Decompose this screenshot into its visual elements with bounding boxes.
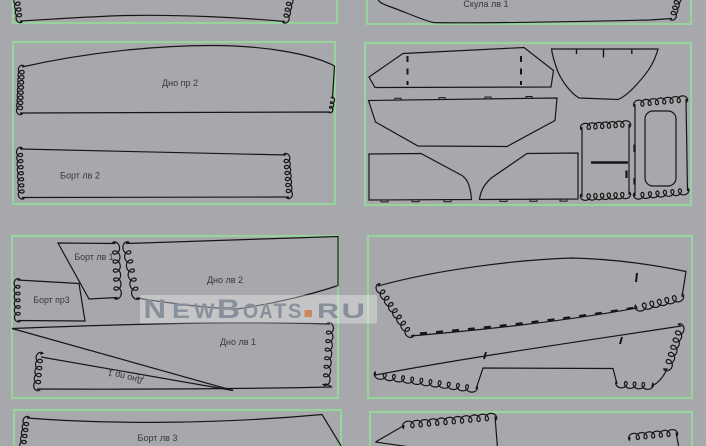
svg-text:Борт лв 3: Борт лв 3 [138, 433, 178, 443]
svg-text:Дно пр 2: Дно пр 2 [162, 78, 198, 88]
svg-text:NEWBOATSRU: NEWBOATSRU [144, 294, 366, 324]
svg-text:Борт пр3: Борт пр3 [33, 295, 69, 305]
svg-text:Борт лв 2: Борт лв 2 [60, 171, 100, 181]
svg-text:Дно лв 1: Дно лв 1 [220, 337, 256, 347]
svg-text:Борт лв 1: Борт лв 1 [75, 252, 114, 262]
svg-text:Скула лв 1: Скула лв 1 [463, 0, 508, 9]
svg-text:Дно лв 2: Дно лв 2 [207, 275, 243, 285]
